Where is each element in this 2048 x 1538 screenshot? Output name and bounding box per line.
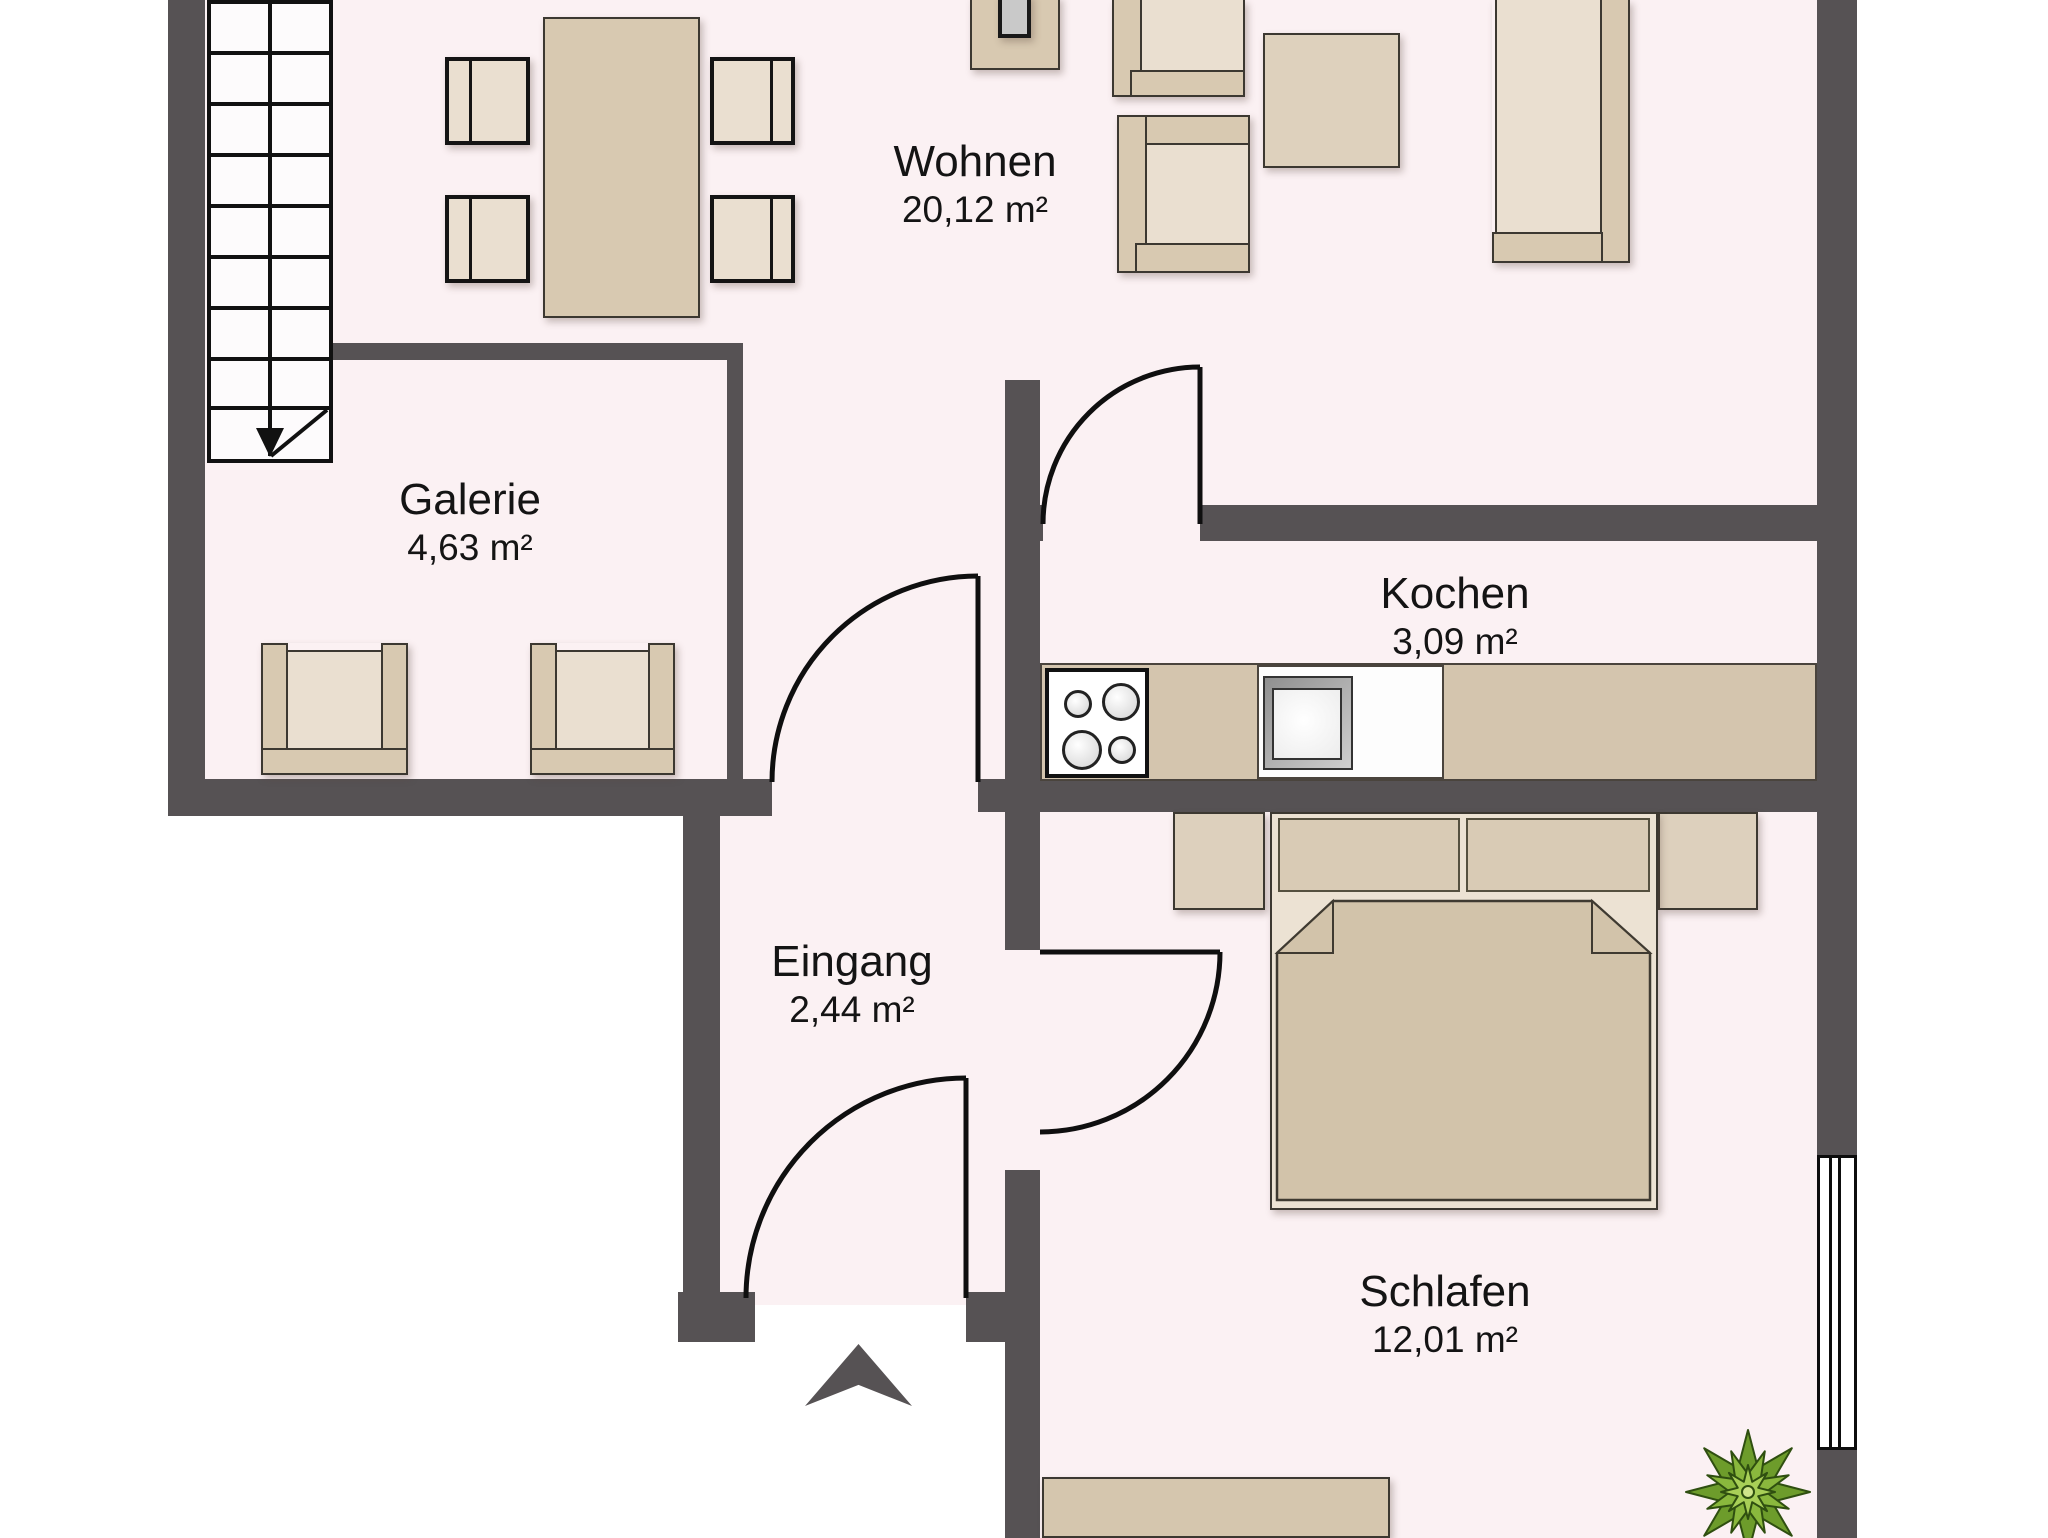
plant-icon <box>1682 1426 1814 1538</box>
staircase-down-arrow-icon <box>211 4 329 459</box>
wall-outer-right-lower <box>1817 1450 1857 1538</box>
armchair-front <box>1130 70 1245 97</box>
dining-chair <box>710 57 795 145</box>
armchair-back <box>261 748 408 775</box>
room-area: 2,44 m² <box>682 990 1022 1031</box>
coffee-table <box>1263 33 1400 168</box>
armchair-seat <box>1145 143 1250 245</box>
room-name: Kochen <box>1285 570 1625 618</box>
chair-backrest-line <box>770 60 773 142</box>
stove-4-burners-icon <box>1045 668 1149 778</box>
room-label-schlafen: Schlafen 12,01 m² <box>1275 1268 1615 1361</box>
burner-icon <box>1108 736 1136 764</box>
wall-kochen-top <box>1200 505 1817 541</box>
room-area: 20,12 m² <box>805 190 1145 231</box>
armchair-side <box>530 643 557 750</box>
room-label-kochen: Kochen 3,09 m² <box>1285 570 1625 663</box>
sofa-seat <box>1495 0 1602 234</box>
armchair-side <box>261 643 288 750</box>
window-pane-line <box>1829 1158 1832 1447</box>
dining-chair <box>445 195 530 283</box>
nightstand <box>1173 812 1265 910</box>
room-label-galerie: Galerie 4,63 m² <box>300 476 640 569</box>
room-name: Galerie <box>300 476 640 524</box>
burner-icon <box>1102 683 1140 721</box>
wall-outer-right-upper <box>1817 0 1857 1155</box>
wall-eingang-right-lower <box>1005 1170 1040 1538</box>
sofa <box>1492 0 1630 263</box>
galerie-armchair <box>261 643 408 775</box>
armchair-seat <box>1140 0 1245 72</box>
sofa-armrest <box>1492 232 1603 263</box>
wall-entry-left-post <box>678 1292 755 1342</box>
room-area: 3,09 m² <box>1285 622 1625 663</box>
room-area: 4,63 m² <box>300 528 640 569</box>
pillow <box>1466 818 1650 892</box>
room-label-eingang: Eingang 2,44 m² <box>682 938 1022 1031</box>
armchair-seat <box>555 650 650 750</box>
room-area: 12,01 m² <box>1275 1320 1615 1361</box>
armchair-back <box>530 748 675 775</box>
wall-galerie-top <box>333 343 743 360</box>
window-icon <box>1817 1155 1857 1450</box>
dresser <box>1042 1477 1390 1538</box>
wall-kochen-schlafen <box>978 779 1817 812</box>
armchair-side <box>1135 115 1250 145</box>
burner-icon <box>1062 730 1102 770</box>
armchair-side <box>648 643 675 750</box>
wall-eingang-right-upper <box>1005 380 1040 950</box>
wall-eingang-left <box>683 812 720 1292</box>
window-pane-line <box>1838 1158 1841 1447</box>
chair-backrest-line <box>469 60 472 142</box>
dining-table <box>543 17 700 318</box>
armchair <box>1112 0 1245 97</box>
room-name: Schlafen <box>1275 1268 1615 1316</box>
sink-basin <box>1272 688 1342 760</box>
burner-icon <box>1064 690 1092 718</box>
sofa-back <box>1600 0 1630 263</box>
chair-backrest-line <box>770 198 773 280</box>
wall-galerie-right <box>727 343 743 779</box>
wall-kochen-top-left-post <box>1005 505 1043 541</box>
floor-eingang <box>683 779 1043 1305</box>
chair-backrest-line <box>469 198 472 280</box>
room-name: Wohnen <box>805 138 1145 186</box>
armchair-side <box>381 643 408 750</box>
staircase <box>207 0 333 463</box>
pillow <box>1278 818 1460 892</box>
dining-chair <box>445 57 530 145</box>
wall-outer-left <box>168 0 205 816</box>
kitchen-sink-icon <box>1257 665 1444 779</box>
room-label-wohnen: Wohnen 20,12 m² <box>805 138 1145 231</box>
dining-chair <box>710 195 795 283</box>
armchair-side <box>1135 243 1250 273</box>
room-name: Eingang <box>682 938 1022 986</box>
wall-galerie-bottom <box>168 779 772 816</box>
tv-icon <box>998 0 1031 38</box>
galerie-armchair <box>530 643 675 775</box>
floor-plan-page: Wohnen 20,12 m² Galerie 4,63 m² Kochen 3… <box>0 0 2048 1538</box>
nightstand <box>1658 812 1758 910</box>
armchair-seat <box>286 650 383 750</box>
entrance-up-arrow-icon <box>805 1344 912 1406</box>
